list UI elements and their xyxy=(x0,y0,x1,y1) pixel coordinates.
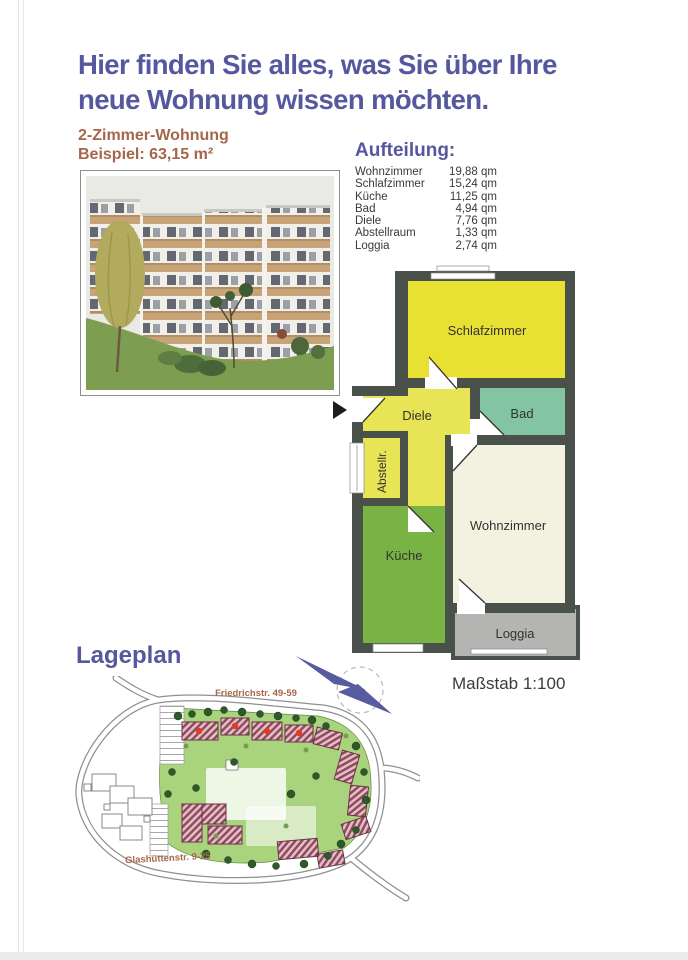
room-name: Bad xyxy=(355,203,375,215)
table-row: Diele 7,76 qm xyxy=(355,215,497,227)
room-label-kueche: Küche xyxy=(386,548,423,563)
apartment-subtitle: 2-Zimmer-Wohnung Beispiel: 63,15 m² xyxy=(78,126,229,164)
page-title-line1: Hier finden Sie alles, was Sie über Ihre xyxy=(78,47,557,82)
room-area: 7,76 qm xyxy=(455,215,497,227)
room-area: 1,33 qm xyxy=(455,227,497,239)
page-title: Hier finden Sie alles, was Sie über Ihre… xyxy=(78,47,557,117)
north-arrow-icon xyxy=(294,648,418,726)
room-name: Abstellraum xyxy=(355,227,416,239)
table-row: Wohnzimmer 19,88 qm xyxy=(355,166,497,178)
street-label-bottom: Glashüttenstr. 9-25 xyxy=(125,851,212,866)
floor-plan: Schlafzimmer Diele Bad Abstellr. Küche W… xyxy=(333,258,595,668)
building-photo-frame xyxy=(80,170,340,396)
room-name: Wohnzimmer xyxy=(355,166,423,178)
brochure-page: Hier finden Sie alles, was Sie über Ihre… xyxy=(0,0,688,952)
room-area: 2,74 qm xyxy=(455,240,497,252)
scale-label: Maßstab 1:100 xyxy=(452,674,565,694)
table-row: Loggia 2,74 qm xyxy=(355,240,497,252)
room-area: 19,88 qm xyxy=(449,166,497,178)
room-area: 11,25 qm xyxy=(450,191,497,203)
room-label-bad: Bad xyxy=(510,406,533,421)
lageplan-heading: Lageplan xyxy=(76,642,181,670)
table-row: Schlafzimmer 15,24 qm xyxy=(355,178,497,190)
room-label-schlafzimmer: Schlafzimmer xyxy=(448,323,527,338)
table-row: Küche 11,25 qm xyxy=(355,191,497,203)
room-label-abstellraum: Abstellr. xyxy=(375,450,389,493)
page-edge-line xyxy=(18,0,28,952)
room-kueche xyxy=(363,506,445,643)
room-name: Loggia xyxy=(355,240,390,252)
room-area: 4,94 qm xyxy=(455,203,497,215)
room-name: Diele xyxy=(355,215,381,227)
room-name: Schlafzimmer xyxy=(355,178,425,190)
street-label-top: Friedrichstr. 49-59 xyxy=(215,688,297,699)
photo-willow-tree xyxy=(95,220,145,328)
parking-lot xyxy=(150,804,168,856)
apartment-type-label: 2-Zimmer-Wohnung xyxy=(78,126,229,145)
room-label-wohnzimmer: Wohnzimmer xyxy=(470,518,547,533)
apartment-size-label: Beispiel: 63,15 m² xyxy=(78,145,229,164)
aufteilung-heading: Aufteilung: xyxy=(355,140,455,162)
page-title-line2: neue Wohnung wissen möchten. xyxy=(78,82,557,117)
table-row: Bad 4,94 qm xyxy=(355,203,497,215)
room-label-loggia: Loggia xyxy=(495,626,535,641)
room-area-table: Wohnzimmer 19,88 qm Schlafzimmer 15,24 q… xyxy=(355,166,497,252)
room-name: Küche xyxy=(355,191,388,203)
room-area: 15,24 qm xyxy=(449,178,497,190)
table-row: Abstellraum 1,33 qm xyxy=(355,227,497,239)
entry-arrow-icon xyxy=(333,401,347,419)
page-bottom-edge xyxy=(0,952,688,960)
building-photo xyxy=(86,176,334,390)
room-label-diele: Diele xyxy=(402,408,432,423)
